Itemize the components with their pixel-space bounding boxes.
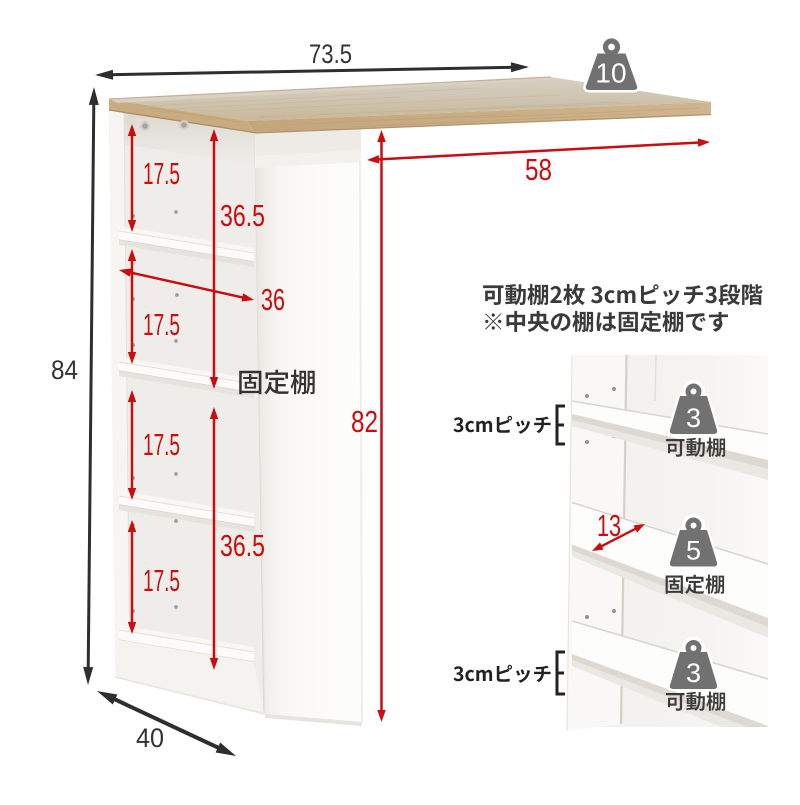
svg-text:10: 10 xyxy=(595,58,626,89)
svg-text:17.5: 17.5 xyxy=(143,156,180,191)
svg-text:36.5: 36.5 xyxy=(220,528,265,563)
svg-text:17.5: 17.5 xyxy=(143,563,180,598)
svg-text:73.5: 73.5 xyxy=(309,39,352,69)
svg-text:84: 84 xyxy=(51,355,78,385)
svg-text:3: 3 xyxy=(686,658,701,688)
svg-text:13: 13 xyxy=(597,508,621,543)
svg-text:82: 82 xyxy=(351,404,378,439)
svg-text:58: 58 xyxy=(525,152,552,187)
svg-text:36: 36 xyxy=(261,282,285,317)
svg-text:36.5: 36.5 xyxy=(220,198,265,233)
svg-text:5: 5 xyxy=(686,536,701,566)
svg-text:17.5: 17.5 xyxy=(143,427,180,462)
svg-text:40: 40 xyxy=(136,723,164,753)
svg-text:17.5: 17.5 xyxy=(143,307,180,342)
svg-text:3: 3 xyxy=(686,403,701,433)
